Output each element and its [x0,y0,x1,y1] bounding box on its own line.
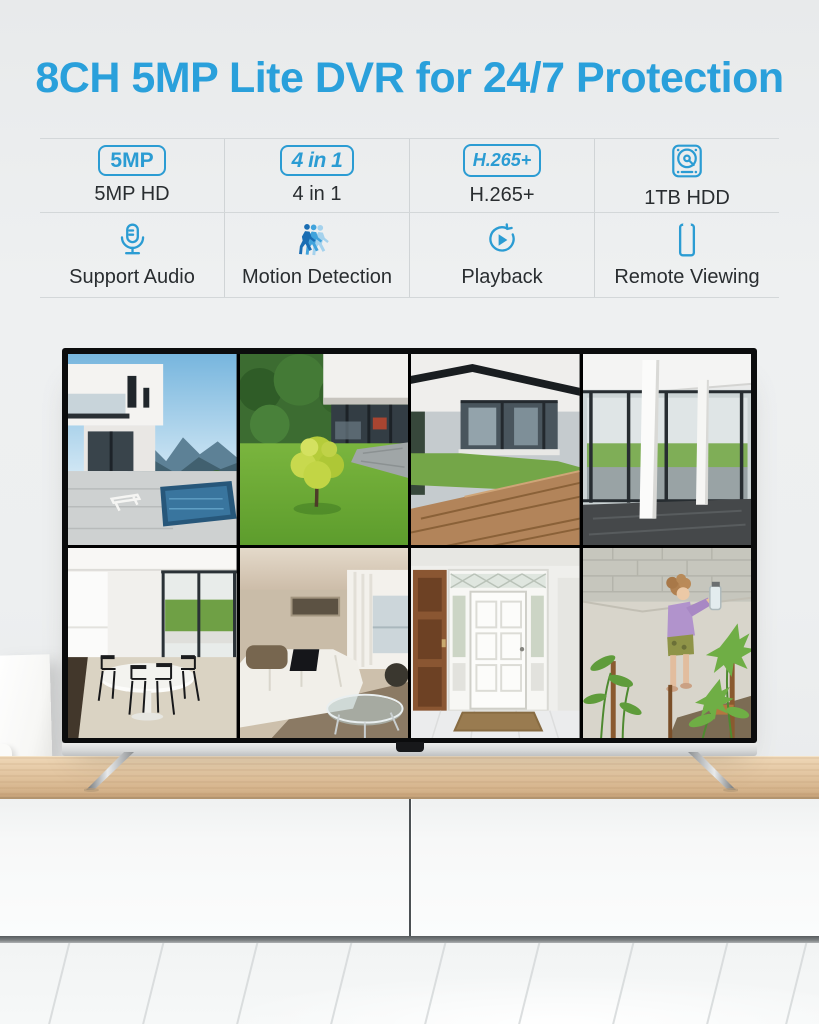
feature-playback: Playback [409,213,594,297]
floor [0,943,819,1024]
feature-label: Support Audio [69,266,195,289]
motion-detection-icon [298,221,336,259]
camera-feed-1 [68,354,237,545]
floor-plank-line [235,943,260,1024]
feature-h265: H.265+ H.265+ [409,139,594,212]
cabinet-door-seam [409,798,411,938]
feature-audio: Support Audio [40,213,224,297]
smartphone-icon [668,221,706,259]
camera-feed-6 [240,548,409,739]
tv-leg-right [688,752,738,792]
floor-plank-line [329,943,354,1024]
badge-4in1: 4 in 1 [280,145,355,176]
floor-plank-line [517,943,542,1024]
tv-ir-notch [396,742,424,752]
camera-feed-4 [583,354,752,545]
feed-6-image [240,548,409,739]
feed-2-image [240,354,409,545]
feature-table: 5MP 5MP HD 4 in 1 4 in 1 H.265+ H.265+ [40,138,779,298]
floor-plank-line [141,943,166,1024]
feature-5mp: 5MP 5MP HD [40,139,224,212]
product-infographic: 8CH 5MP Lite DVR for 24/7 Protection 5MP… [0,0,819,1024]
floor-plank-line [611,943,636,1024]
camera-feed-3 [411,354,580,545]
feature-remote: Remote Viewing [594,213,779,297]
feature-motion: Motion Detection [224,213,409,297]
white-cabinet [0,798,819,938]
cabinet-bottom-shadow [0,936,819,943]
badge-5mp: 5MP [98,145,165,176]
camera-feed-5 [68,548,237,739]
feed-4-image [583,354,752,545]
feature-label: 1TB HDD [644,187,730,210]
floor-plank-line [784,943,809,1024]
feature-hdd: 1TB HDD [594,139,779,212]
feature-label: H.265+ [469,184,534,207]
tv [62,348,757,743]
feature-4in1: 4 in 1 4 in 1 [224,139,409,212]
microphone-icon [113,221,151,259]
floor-plank-line [423,943,448,1024]
feature-label: Motion Detection [242,266,392,289]
tv-screen-8ch-grid [68,354,751,738]
playback-icon [483,221,521,259]
tv-leg-left [84,752,134,792]
hard-drive-icon [668,142,706,180]
feed-1-image [68,354,237,545]
feature-label: 4 in 1 [293,183,342,206]
feature-row-2: Support Audio Motion Detection [40,212,779,297]
feed-5-image [68,548,237,739]
feature-label: Remote Viewing [614,266,759,289]
floor-plank-line [47,943,72,1024]
page-title: 8CH 5MP Lite DVR for 24/7 Protection [0,54,819,103]
floor-plank-line [705,943,730,1024]
feature-label: Playback [461,266,542,289]
feed-3-image [411,354,580,545]
badge-h265: H.265+ [463,144,542,177]
feature-row-1: 5MP 5MP HD 4 in 1 4 in 1 H.265+ H.265+ [40,139,779,212]
feature-label: 5MP HD [94,183,169,206]
feed-7-image [411,548,580,739]
camera-feed-8 [583,548,752,739]
camera-feed-2 [240,354,409,545]
feed-8-image [583,548,752,739]
camera-feed-7 [411,548,580,739]
